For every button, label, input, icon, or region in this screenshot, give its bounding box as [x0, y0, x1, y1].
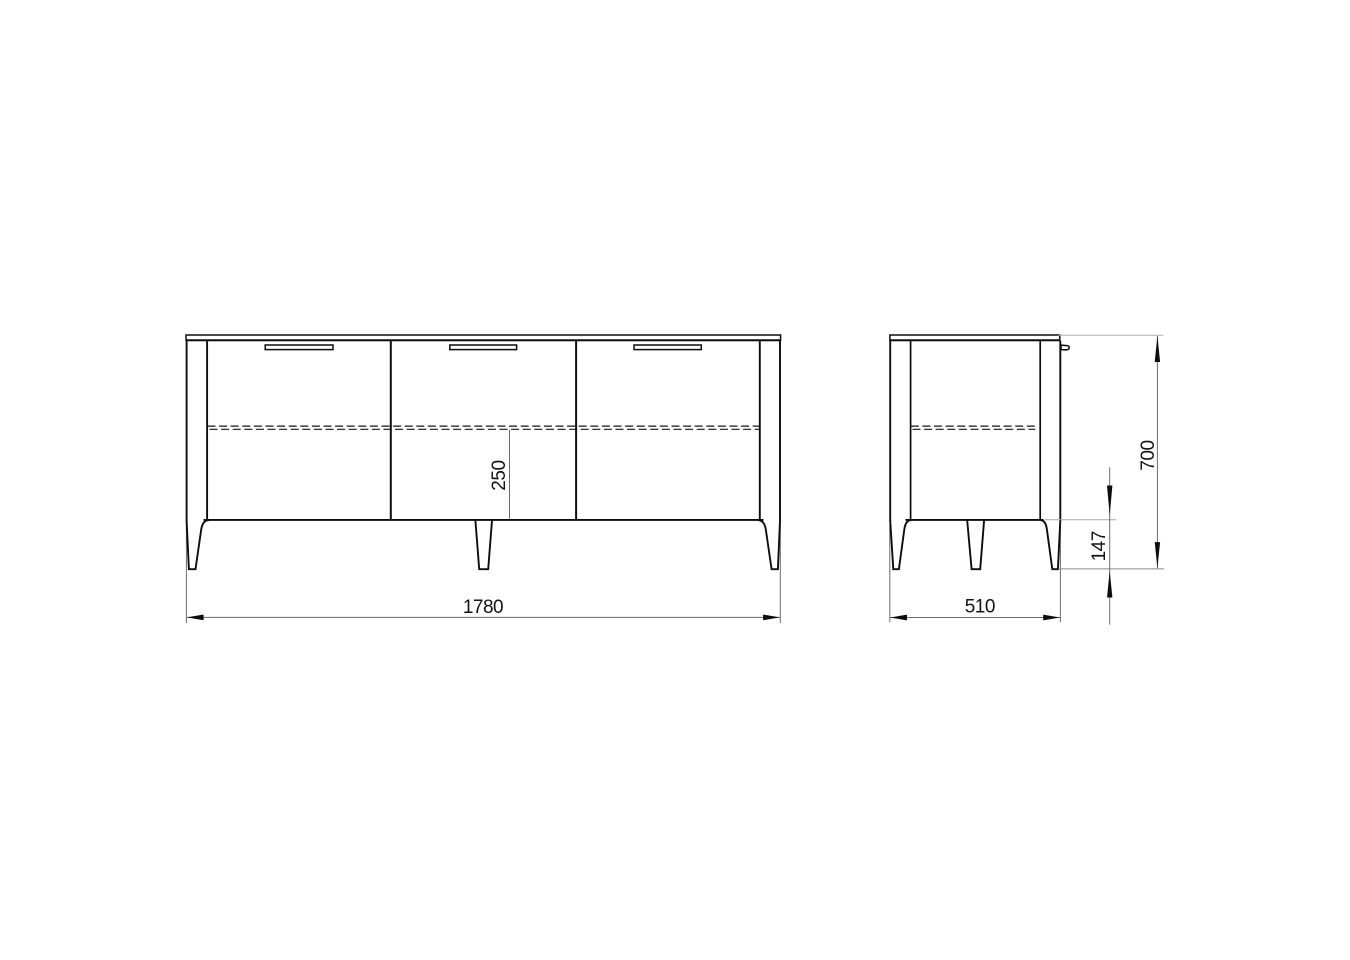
- svg-text:250: 250: [489, 460, 510, 490]
- svg-text:700: 700: [1138, 440, 1159, 470]
- svg-text:147: 147: [1089, 531, 1110, 561]
- svg-text:1780: 1780: [463, 597, 503, 618]
- svg-text:510: 510: [965, 597, 995, 618]
